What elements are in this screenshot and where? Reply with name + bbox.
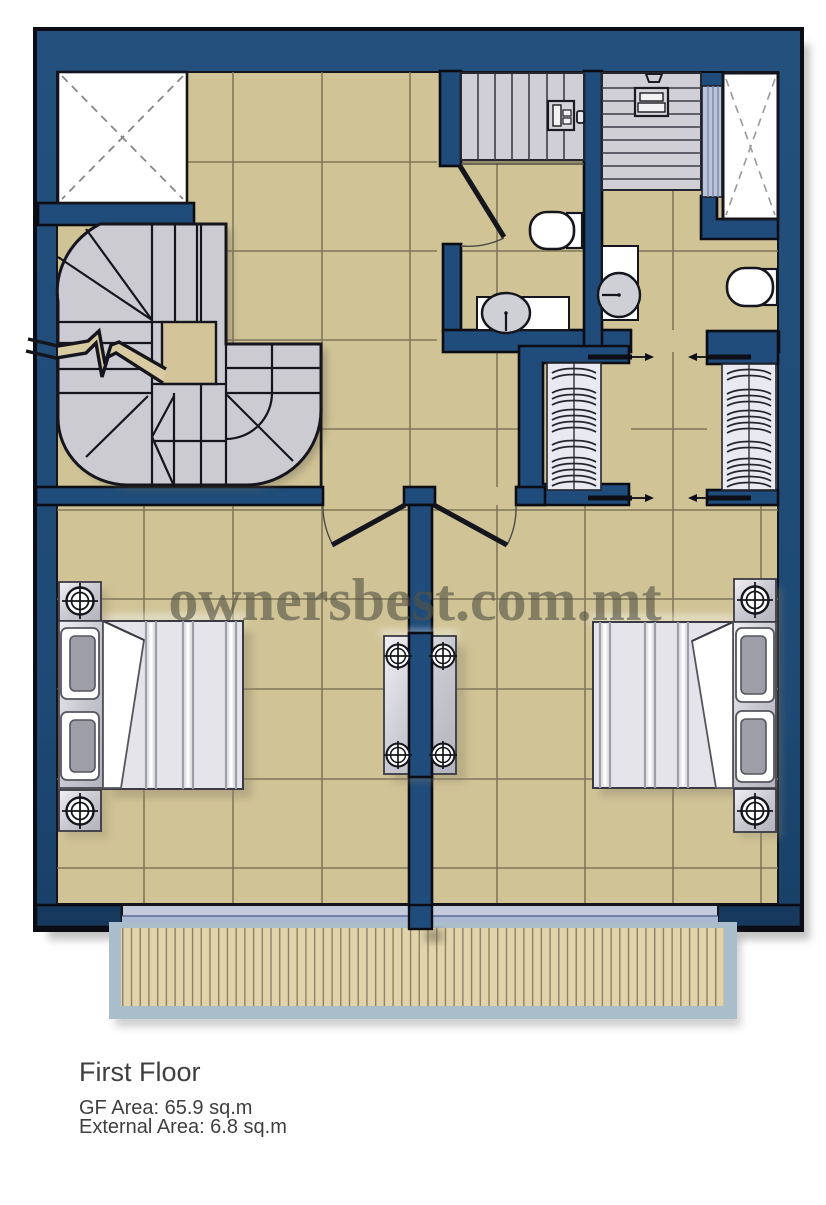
svg-text:ownersbest.com.mt: ownersbest.com.mt bbox=[168, 567, 661, 633]
svg-text:First Floor: First Floor bbox=[79, 1057, 201, 1087]
svg-text:External Area: 6.8 sq.m: External Area: 6.8 sq.m bbox=[79, 1116, 287, 1138]
